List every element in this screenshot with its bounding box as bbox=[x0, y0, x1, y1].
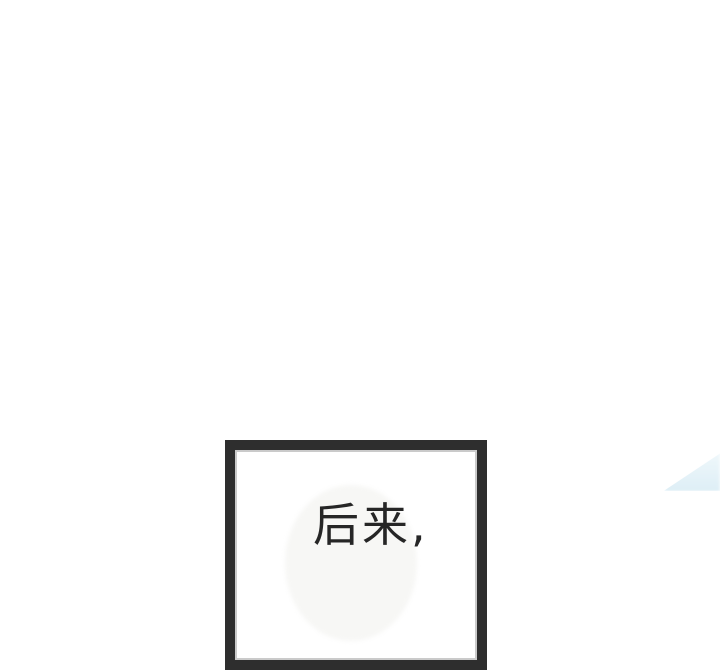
comic-panel-frame: 后来, bbox=[225, 440, 487, 670]
dialogue-text: 后来, bbox=[313, 500, 429, 551]
background-art-fragment bbox=[664, 451, 720, 492]
comic-page: 后来, bbox=[0, 0, 720, 547]
